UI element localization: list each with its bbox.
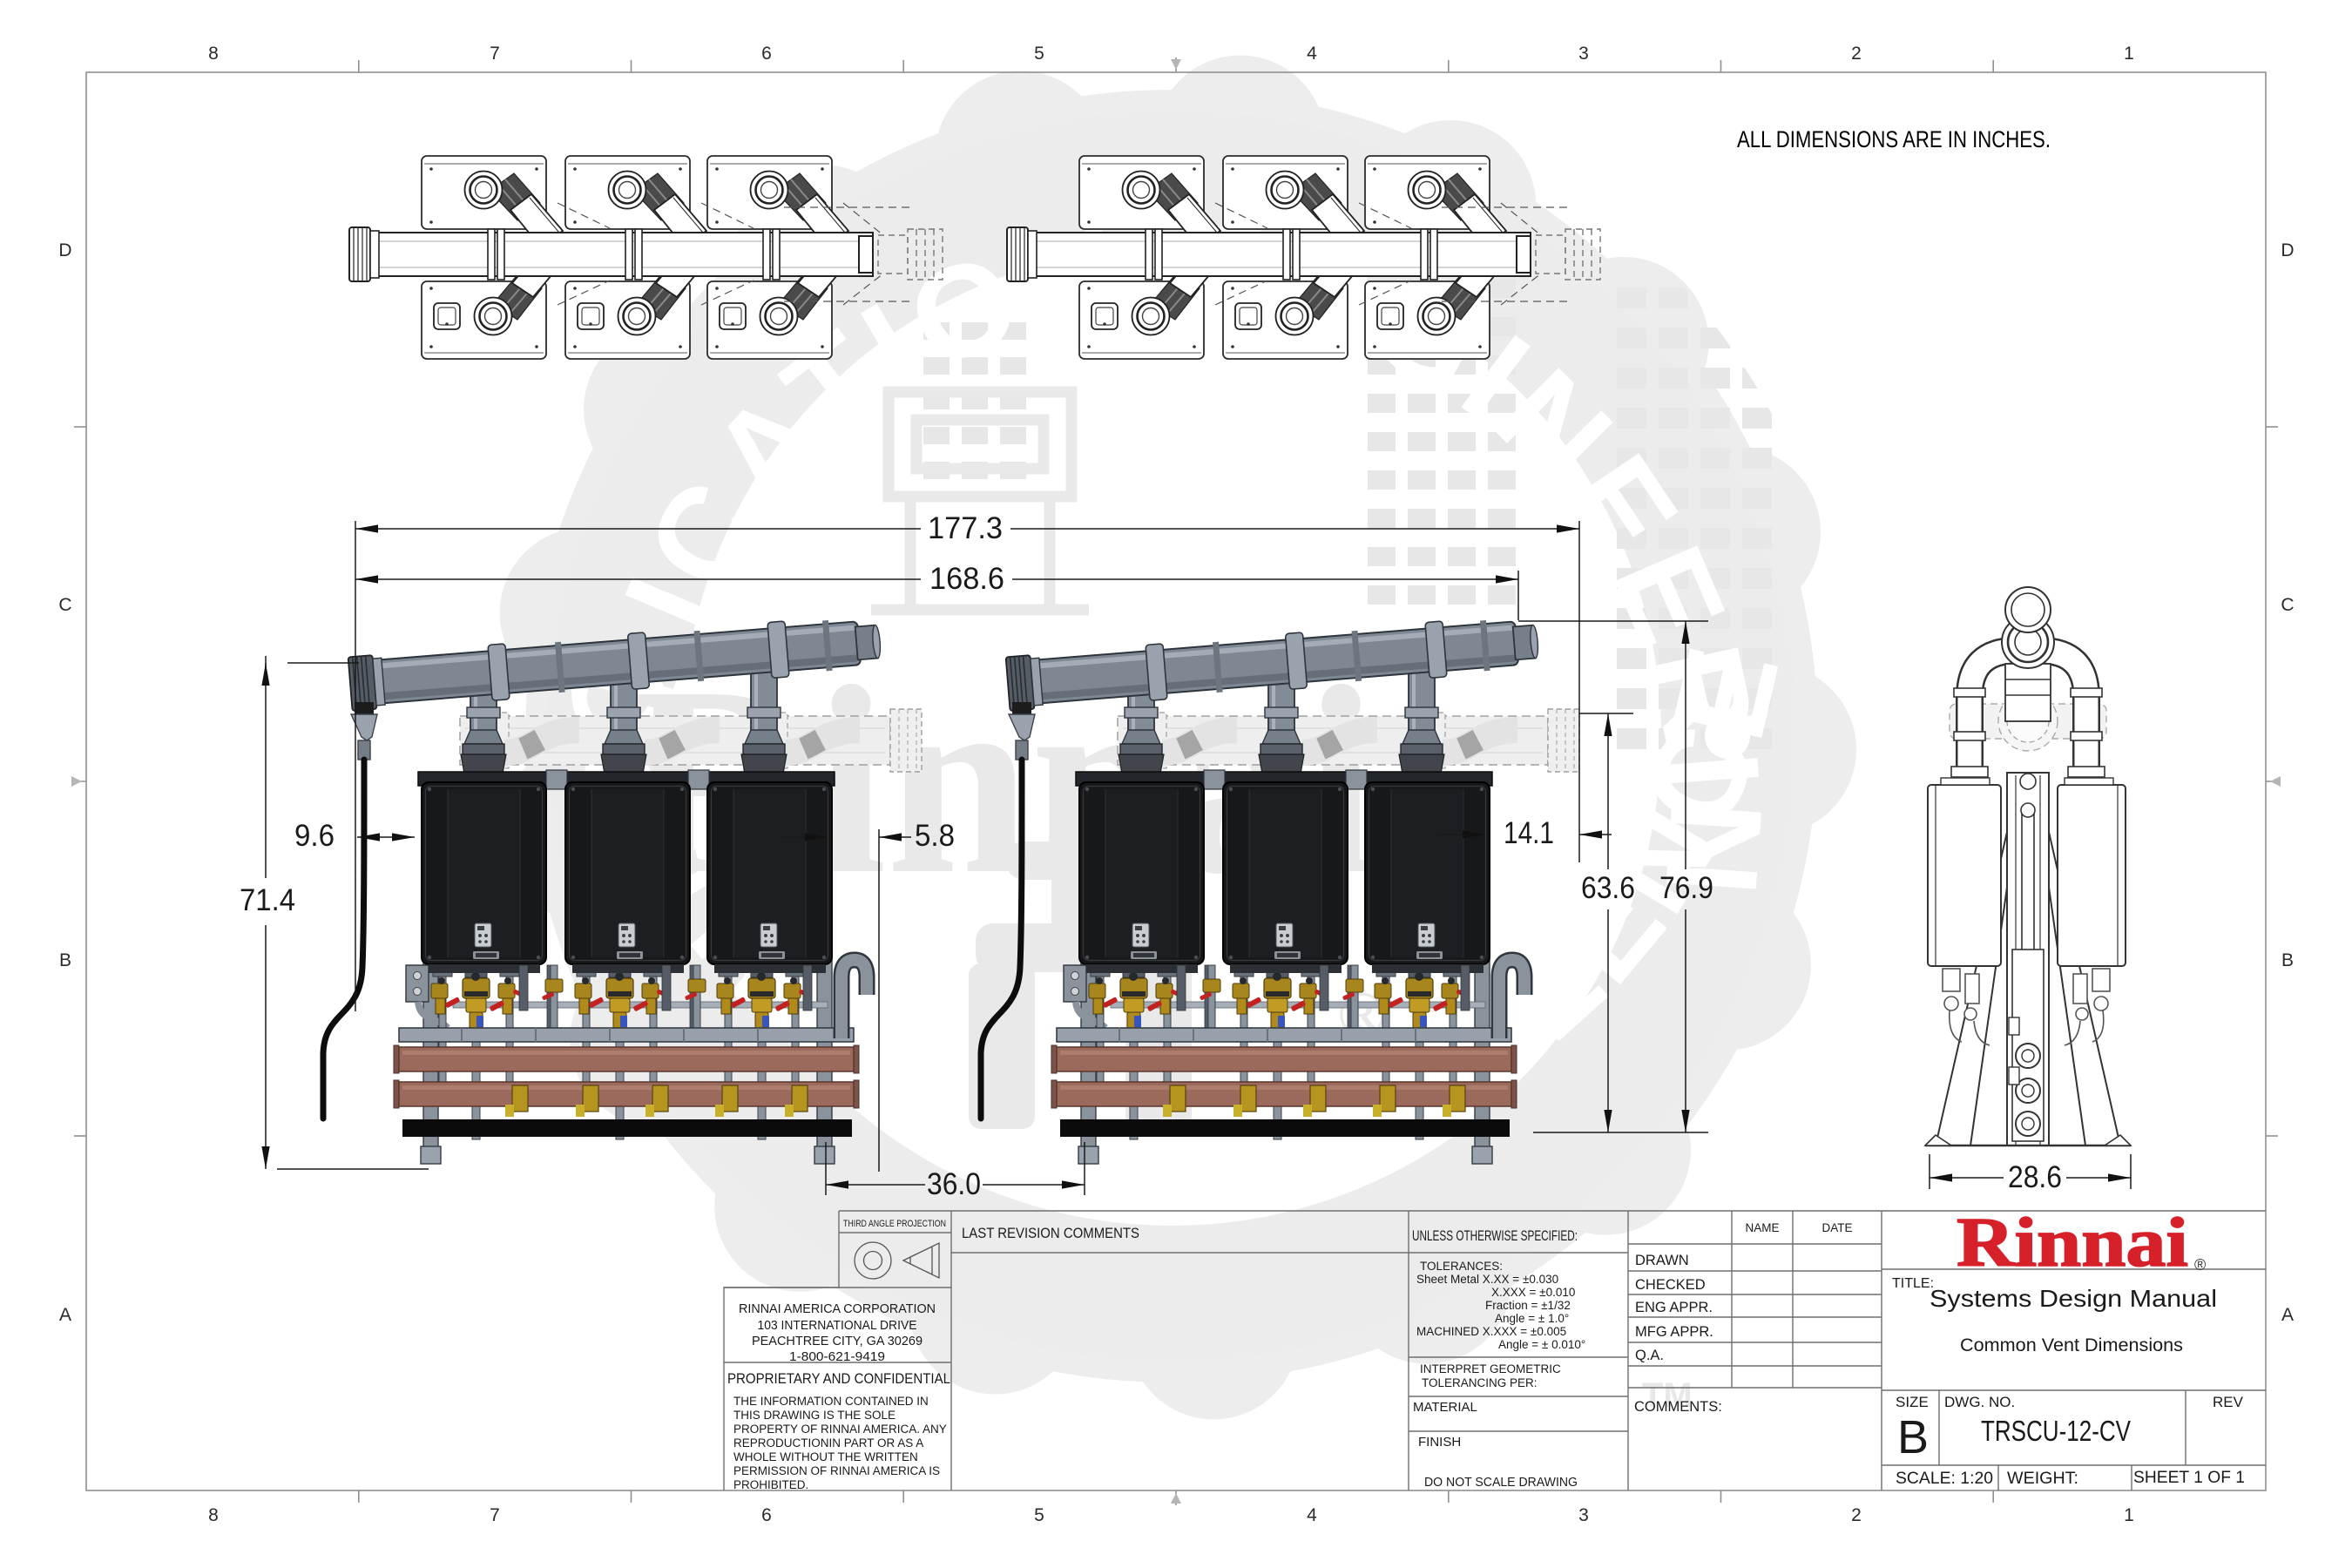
svg-text:ALL DIMENSIONS ARE IN INCHES.: ALL DIMENSIONS ARE IN INCHES. xyxy=(1737,126,2051,152)
svg-text:Common Vent Dimensions: Common Vent Dimensions xyxy=(1960,1335,2183,1355)
svg-text:Q.A.: Q.A. xyxy=(1635,1348,1664,1363)
svg-text:76.9: 76.9 xyxy=(1659,871,1713,905)
svg-text:36.0: 36.0 xyxy=(927,1167,981,1201)
svg-text:WEIGHT:: WEIGHT: xyxy=(2007,1470,2078,1488)
svg-text:3: 3 xyxy=(1578,44,1589,64)
svg-text:TRSCU-12-CV: TRSCU-12-CV xyxy=(1981,1415,2131,1447)
svg-text:SCALE: 1:20: SCALE: 1:20 xyxy=(1896,1470,1993,1488)
svg-text:8: 8 xyxy=(208,1505,219,1525)
svg-text:COMMENTS:: COMMENTS: xyxy=(1634,1399,1722,1415)
svg-text:PROPERTY OF RINNAI AMERICA. AN: PROPERTY OF RINNAI AMERICA. ANY xyxy=(733,1423,947,1436)
svg-text:CHECKED: CHECKED xyxy=(1635,1277,1706,1293)
svg-text:X.XXX = ±0.010: X.XXX = ±0.010 xyxy=(1491,1286,1575,1299)
svg-text:DATE: DATE xyxy=(1821,1221,1852,1234)
svg-text:7: 7 xyxy=(490,1505,500,1525)
svg-text:5: 5 xyxy=(1034,1505,1044,1525)
svg-text:TITLE:: TITLE: xyxy=(1892,1276,1934,1291)
svg-text:TOLERANCES:: TOLERANCES: xyxy=(1420,1260,1503,1273)
svg-text:C: C xyxy=(58,595,71,615)
svg-text:PROHIBITED.: PROHIBITED. xyxy=(733,1478,808,1491)
svg-text:1: 1 xyxy=(2124,44,2134,64)
svg-text:THE INFORMATION CONTAINED IN: THE INFORMATION CONTAINED IN xyxy=(733,1395,929,1408)
svg-text:5: 5 xyxy=(1034,44,1044,64)
svg-text:2: 2 xyxy=(1851,1505,1862,1525)
svg-text:B: B xyxy=(59,950,71,970)
svg-text:63.6: 63.6 xyxy=(1581,871,1635,905)
svg-text:MACHINED X.XXX = ±0.005: MACHINED X.XXX = ±0.005 xyxy=(1416,1325,1566,1338)
svg-text:REV: REV xyxy=(2213,1394,2244,1410)
svg-text:4: 4 xyxy=(1307,44,1317,64)
svg-text:A: A xyxy=(2281,1305,2294,1325)
svg-text:9.6: 9.6 xyxy=(294,819,335,853)
svg-text:Systems Design Manual: Systems Design Manual xyxy=(1930,1285,2217,1312)
svg-text:14.1: 14.1 xyxy=(1504,816,1554,850)
svg-text:DWG. NO.: DWG. NO. xyxy=(1944,1394,2015,1410)
svg-text:1-800-621-9419: 1-800-621-9419 xyxy=(789,1349,885,1364)
svg-text:ENG APPR.: ENG APPR. xyxy=(1635,1300,1713,1315)
svg-text:PEACHTREE CITY, GA 30269: PEACHTREE CITY, GA 30269 xyxy=(752,1334,923,1348)
svg-text:PROPRIETARY AND CONFIDENTIAL: PROPRIETARY AND CONFIDENTIAL xyxy=(727,1371,950,1387)
svg-text:D: D xyxy=(58,240,71,260)
svg-text:MFG APPR.: MFG APPR. xyxy=(1635,1324,1713,1340)
svg-text:6: 6 xyxy=(761,44,772,64)
svg-text:2: 2 xyxy=(1851,44,1862,64)
svg-text:INTERPRET GEOMETRIC: INTERPRET GEOMETRIC xyxy=(1420,1362,1561,1375)
svg-text:TOLERANCING PER:: TOLERANCING PER: xyxy=(1422,1376,1538,1389)
svg-text:REPRODUCTIONIN PART OR AS A: REPRODUCTIONIN PART OR AS A xyxy=(733,1436,923,1450)
svg-text:THIRD ANGLE PROJECTION: THIRD ANGLE PROJECTION xyxy=(843,1219,946,1229)
svg-text:Rinnai: Rinnai xyxy=(1957,1205,2188,1281)
svg-text:FINISH: FINISH xyxy=(1418,1435,1461,1450)
svg-text:UNLESS OTHERWISE SPECIFIED:: UNLESS OTHERWISE SPECIFIED: xyxy=(1412,1228,1578,1244)
svg-text:3: 3 xyxy=(1578,1505,1589,1525)
svg-text:DO NOT SCALE DRAWING: DO NOT SCALE DRAWING xyxy=(1424,1475,1578,1490)
svg-text:THIS DRAWING IS THE SOLE: THIS DRAWING IS THE SOLE xyxy=(733,1409,896,1422)
svg-text:®: ® xyxy=(2194,1256,2206,1274)
svg-text:1: 1 xyxy=(2124,1505,2134,1525)
svg-text:D: D xyxy=(2281,240,2294,260)
svg-text:Angle = ± 0.010°: Angle = ± 0.010° xyxy=(1498,1338,1585,1351)
svg-text:Fraction = ±1/32: Fraction = ±1/32 xyxy=(1485,1299,1571,1312)
svg-text:C: C xyxy=(2281,595,2294,615)
svg-text:SIZE: SIZE xyxy=(1896,1394,1929,1410)
svg-text:B: B xyxy=(1897,1411,1929,1463)
svg-text:WHOLE WITHOUT THE WRITTEN: WHOLE WITHOUT THE WRITTEN xyxy=(733,1450,918,1463)
svg-text:7: 7 xyxy=(490,44,500,64)
svg-text:MATERIAL: MATERIAL xyxy=(1413,1400,1477,1415)
svg-text:NAME: NAME xyxy=(1745,1221,1779,1234)
svg-text:Angle = ± 1.0°: Angle = ± 1.0° xyxy=(1495,1312,1569,1325)
svg-text:103 INTERNATIONAL DRIVE: 103 INTERNATIONAL DRIVE xyxy=(758,1318,917,1333)
svg-text:168.6: 168.6 xyxy=(929,562,1004,596)
svg-text:RINNAI AMERICA CORPORATION: RINNAI AMERICA CORPORATION xyxy=(739,1301,936,1316)
svg-text:71.4: 71.4 xyxy=(240,883,295,917)
svg-text:4: 4 xyxy=(1307,1505,1317,1525)
svg-text:LAST REVISION COMMENTS: LAST REVISION COMMENTS xyxy=(962,1226,1139,1241)
svg-text:177.3: 177.3 xyxy=(928,511,1003,545)
svg-text:B: B xyxy=(2281,950,2294,970)
svg-text:6: 6 xyxy=(761,1505,772,1525)
svg-text:Sheet Metal X.XX = ±0.030: Sheet Metal X.XX = ±0.030 xyxy=(1416,1273,1558,1286)
svg-text:5.8: 5.8 xyxy=(915,819,955,853)
svg-text:8: 8 xyxy=(208,44,219,64)
svg-text:28.6: 28.6 xyxy=(2008,1160,2062,1194)
svg-text:DRAWN: DRAWN xyxy=(1635,1253,1689,1268)
svg-text:SHEET 1 OF 1: SHEET 1 OF 1 xyxy=(2133,1469,2245,1487)
svg-text:A: A xyxy=(59,1305,71,1325)
svg-text:PERMISSION OF RINNAI AMERICA I: PERMISSION OF RINNAI AMERICA IS xyxy=(733,1464,940,1477)
